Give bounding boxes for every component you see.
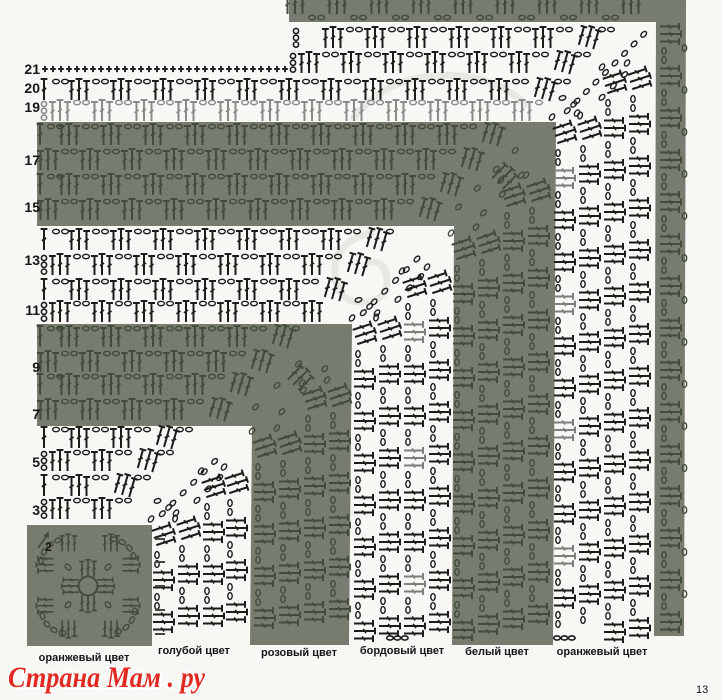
svg-text:белый цвет: белый цвет <box>465 646 529 658</box>
svg-text:19: 19 <box>24 99 40 115</box>
svg-text:7: 7 <box>32 406 40 422</box>
svg-text:13: 13 <box>696 684 708 696</box>
svg-text:21: 21 <box>24 61 40 77</box>
svg-text:13: 13 <box>24 252 40 268</box>
svg-text:розовый цвет: розовый цвет <box>261 647 338 659</box>
svg-text:голубой цвет: голубой цвет <box>158 645 231 657</box>
svg-text:17: 17 <box>24 152 40 168</box>
svg-text:3: 3 <box>32 502 40 518</box>
svg-text:бордовый цвет: бордовый цвет <box>360 645 445 657</box>
svg-text:15: 15 <box>24 199 40 215</box>
svg-text:11: 11 <box>25 302 40 318</box>
svg-text:5: 5 <box>32 454 40 470</box>
svg-text:2: 2 <box>45 540 52 554</box>
svg-text:Страна Мам . ру: Страна Мам . ру <box>8 661 206 694</box>
svg-text:20: 20 <box>24 80 40 96</box>
svg-text:9: 9 <box>32 359 40 375</box>
svg-text:оранжевый цвет: оранжевый цвет <box>557 646 648 658</box>
